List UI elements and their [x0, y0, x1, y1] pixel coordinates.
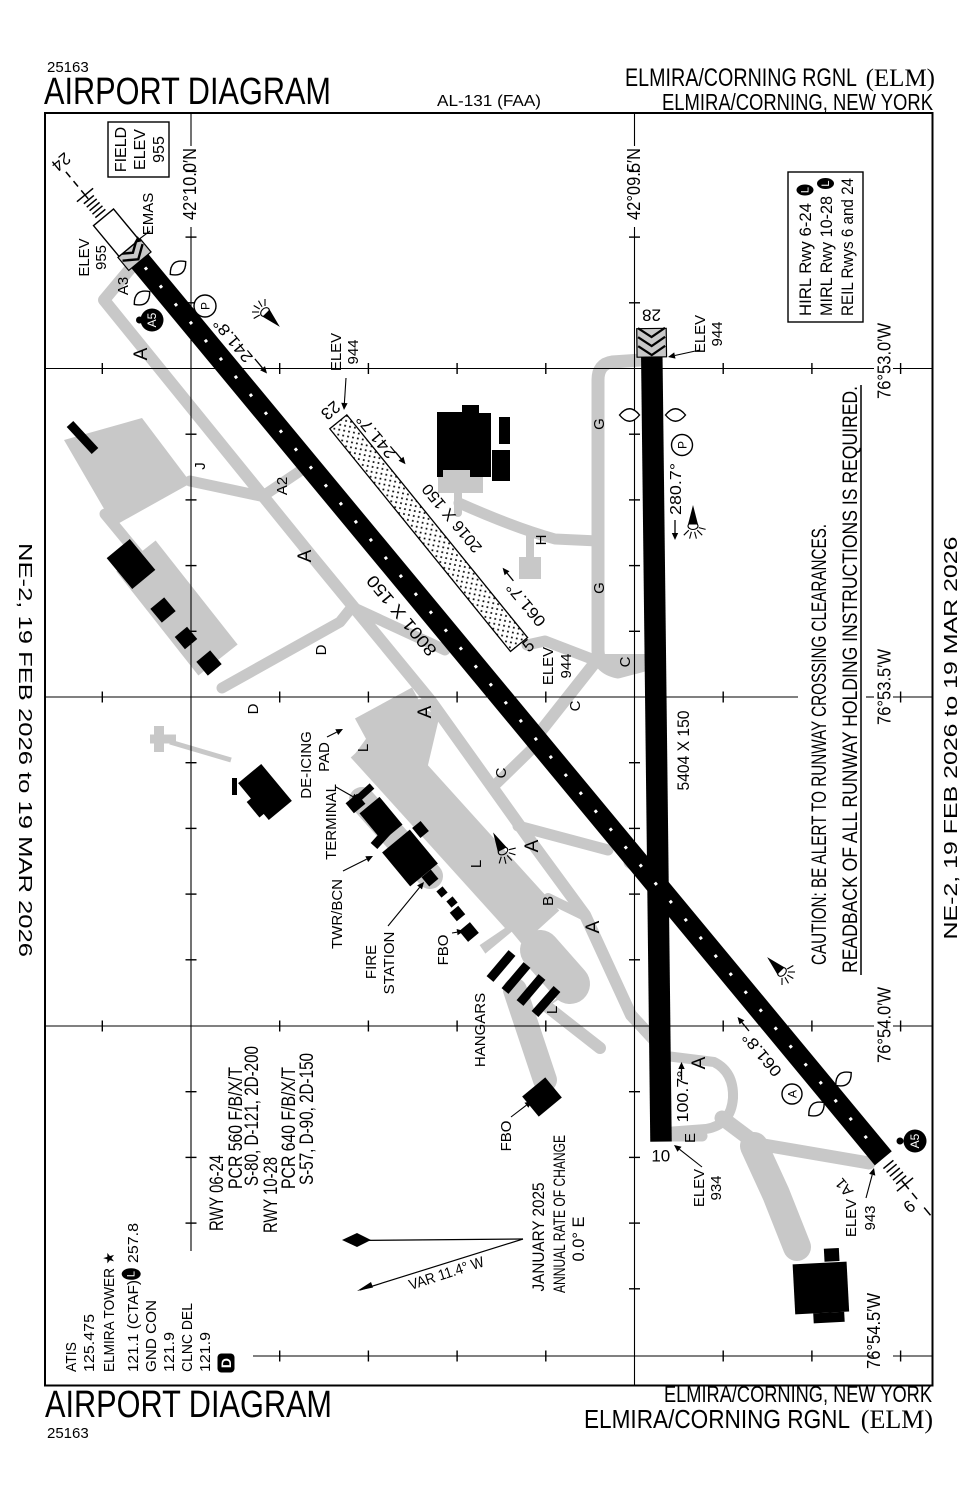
svg-text:A5: A5 — [145, 312, 159, 327]
svg-text:ELEV: ELEV — [76, 238, 93, 276]
svg-text:ELMIRA TOWER ★: ELMIRA TOWER ★ — [101, 1252, 118, 1372]
svg-text:76°54.5′W: 76°54.5′W — [864, 1293, 884, 1369]
svg-text:100.7°: 100.7° — [675, 1071, 692, 1123]
svg-text:A: A — [786, 1090, 800, 1098]
svg-text:A2: A2 — [274, 477, 291, 495]
svg-text:A: A — [583, 920, 604, 933]
svg-text:TERMINAL: TERMINAL — [323, 784, 340, 860]
svg-text:B: B — [540, 896, 557, 906]
svg-text:DE-ICING: DE-ICING — [298, 731, 315, 799]
svg-text:NE-2, 19 FEB 2026 to 19 MAR: NE-2, 19 FEB 2026 to 19 MAR 2026 — [15, 543, 35, 957]
svg-text:MIRL Rwy 10-28: MIRL Rwy 10-28 — [817, 196, 836, 316]
svg-text:PAD: PAD — [316, 742, 333, 772]
svg-text:G: G — [591, 418, 608, 430]
svg-text:L: L — [800, 187, 812, 193]
svg-text:944: 944 — [709, 321, 726, 346]
svg-text:CAUTION: BE ALERT TO RUNWAY CR: CAUTION: BE ALERT TO RUNWAY CROSSING CLE… — [808, 524, 831, 965]
svg-text:E: E — [682, 1133, 699, 1143]
svg-text:ELEV: ELEV — [691, 1169, 708, 1207]
svg-text:934: 934 — [708, 1175, 725, 1200]
svg-text:ELEV: ELEV — [843, 1199, 860, 1237]
svg-text:ELEV: ELEV — [692, 315, 709, 353]
svg-text:121.1 (CTAF): 121.1 (CTAF) — [125, 1280, 142, 1372]
svg-text:L: L — [126, 1271, 138, 1277]
svg-text:D: D — [245, 703, 262, 714]
svg-text:A: A — [522, 839, 543, 852]
svg-text:5404 X 150: 5404 X 150 — [674, 711, 693, 791]
svg-text:25163: 25163 — [47, 1425, 89, 1442]
svg-text:J: J — [192, 462, 209, 470]
svg-text:257.8: 257.8 — [125, 1223, 142, 1263]
svg-text:ELEV: ELEV — [328, 333, 345, 371]
svg-text:42°10.0′N: 42°10.0′N — [180, 148, 200, 220]
svg-text:A: A — [295, 549, 316, 562]
svg-text:A: A — [131, 347, 152, 360]
svg-text:AL-131 (FAA): AL-131 (FAA) — [437, 93, 541, 110]
svg-text:GND CON: GND CON — [143, 1300, 160, 1372]
svg-text:NE-2, 19 FEB 2026 to 19 MAR: NE-2, 19 FEB 2026 to 19 MAR 2026 — [941, 537, 961, 940]
svg-text:76°53.0′W: 76°53.0′W — [875, 323, 895, 399]
svg-text:FIRE: FIRE — [363, 945, 380, 979]
svg-text:L: L — [468, 860, 485, 868]
svg-text:JANUARY 2025: JANUARY 2025 — [529, 1183, 548, 1292]
svg-text:ELMIRA/CORNING RGNL: ELMIRA/CORNING RGNL — [584, 1404, 850, 1434]
svg-text:H: H — [533, 535, 550, 546]
svg-text:280.7°: 280.7° — [668, 463, 685, 515]
svg-text:READBACK OF ALL RUNWAY HOLDING: READBACK OF ALL RUNWAY HOLDING INSTRUCTI… — [839, 386, 862, 973]
svg-text:76°53.5′W: 76°53.5′W — [875, 649, 895, 725]
svg-text:P: P — [199, 302, 213, 310]
svg-text:CLNC DEL: CLNC DEL — [179, 1303, 196, 1372]
svg-text:121.9: 121.9 — [161, 1332, 178, 1372]
svg-text:A: A — [689, 1056, 710, 1069]
svg-text:L: L — [355, 744, 372, 752]
svg-text:STATION: STATION — [381, 932, 398, 995]
svg-text:42°09.5′N: 42°09.5′N — [624, 148, 644, 220]
svg-text:D: D — [218, 1358, 234, 1368]
svg-text:G: G — [591, 582, 608, 594]
svg-text:28: 28 — [642, 306, 661, 325]
svg-text:ANNUAL RATE OF CHANGE: ANNUAL RATE OF CHANGE — [550, 1135, 569, 1293]
svg-text:TWR/BCN: TWR/BCN — [329, 879, 346, 949]
svg-text:ELEV: ELEV — [540, 647, 557, 685]
svg-text:C: C — [617, 656, 634, 667]
svg-text:AIRPORT DIAGRAM: AIRPORT DIAGRAM — [45, 1384, 332, 1426]
svg-text:FBO: FBO — [435, 935, 452, 966]
svg-text:944: 944 — [345, 339, 362, 364]
svg-text:ELMIRA/CORNING, NEW YORK: ELMIRA/CORNING, NEW YORK — [662, 89, 934, 115]
svg-text:ELMIRA/CORNING RGNL: ELMIRA/CORNING RGNL — [625, 64, 857, 92]
svg-text:ATIS: ATIS — [63, 1342, 80, 1372]
svg-text:D: D — [313, 644, 330, 655]
svg-text:10: 10 — [651, 1147, 670, 1166]
svg-text:121.9: 121.9 — [197, 1332, 214, 1372]
svg-text:76°54.0′W: 76°54.0′W — [875, 987, 895, 1063]
svg-text:A5: A5 — [908, 1133, 922, 1148]
svg-text:FBO: FBO — [498, 1121, 515, 1152]
svg-text:AIRPORT DIAGRAM: AIRPORT DIAGRAM — [44, 71, 331, 113]
svg-text:L: L — [820, 180, 832, 186]
svg-text:A: A — [415, 705, 436, 718]
svg-text:ELEV: ELEV — [132, 129, 149, 170]
svg-text:HANGARS: HANGARS — [472, 993, 489, 1067]
svg-text:125.475: 125.475 — [81, 1314, 98, 1372]
svg-text:(ELM): (ELM) — [866, 65, 935, 92]
svg-text:A3: A3 — [115, 277, 132, 295]
svg-text:S-57, D-90, 2D-150: S-57, D-90, 2D-150 — [297, 1053, 318, 1185]
svg-text:944: 944 — [558, 653, 575, 678]
svg-text:REIL Rwys 6 and 24: REIL Rwys 6 and 24 — [838, 178, 857, 316]
svg-text:955: 955 — [93, 245, 110, 270]
svg-text:0.0° E: 0.0° E — [569, 1217, 588, 1262]
svg-text:L: L — [544, 1006, 561, 1014]
svg-text:C: C — [493, 767, 510, 778]
svg-text:C: C — [567, 700, 584, 711]
svg-text:P: P — [676, 441, 690, 449]
svg-text:RWY 06-24: RWY 06-24 — [207, 1155, 228, 1231]
svg-text:EMAS: EMAS — [140, 193, 157, 236]
svg-text:S-80, D-121, 2D-200: S-80, D-121, 2D-200 — [242, 1046, 263, 1186]
svg-text:943: 943 — [862, 1205, 879, 1230]
svg-text:955: 955 — [151, 136, 168, 163]
svg-text:(ELM): (ELM) — [861, 1405, 933, 1434]
svg-text:FIELD: FIELD — [113, 127, 130, 172]
svg-text:HIRL Rwy 6-24: HIRL Rwy 6-24 — [796, 203, 815, 316]
